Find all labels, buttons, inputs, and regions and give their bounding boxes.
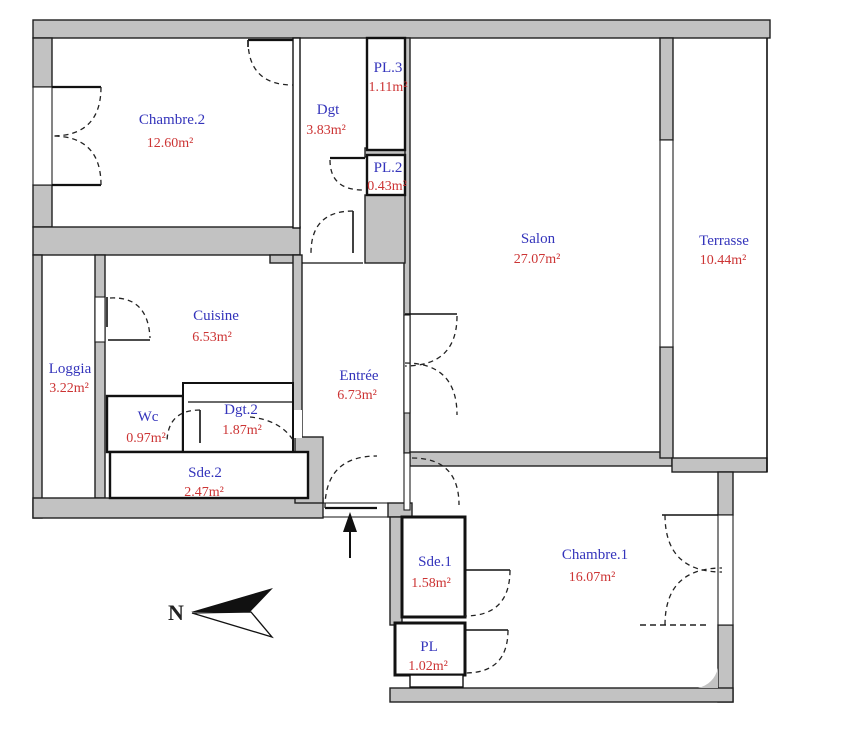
room-name-wc: Wc	[138, 409, 159, 425]
room-name-dgt: Dgt	[317, 102, 340, 118]
pl-door-arc	[465, 630, 508, 673]
wall-corner-curve	[698, 668, 718, 688]
room-name-dgt2: Dgt.2	[224, 402, 258, 418]
pl-closet-step	[410, 675, 463, 687]
wall-segment	[33, 38, 52, 87]
vestibule-door-frame	[404, 453, 410, 510]
room-name-pl: PL	[420, 639, 438, 655]
pl2-door-arc	[330, 160, 363, 190]
salon-door-arc2	[405, 363, 457, 415]
chambre2-door-arc	[248, 40, 293, 85]
room-area-sde1: 1.58m²	[411, 576, 451, 591]
wall-segment	[718, 472, 733, 515]
wall-segment	[33, 227, 300, 255]
entrance-arrow	[343, 512, 357, 558]
wall-segment	[410, 452, 672, 466]
room-name-entree: Entrée	[339, 368, 378, 384]
chambre1-window-arc	[665, 515, 722, 572]
floor-plan-page: N Chambre.2 12.60m² Dgt 3.83m² PL.3 1.11…	[0, 0, 850, 742]
room-area-dgt2: 1.87m²	[222, 423, 262, 438]
chambre2-window	[33, 87, 52, 185]
room-name-sde2: Sde.2	[188, 465, 222, 481]
wall-segment	[672, 458, 767, 472]
chambre2-dgt-divider	[293, 38, 300, 228]
wall-segment	[33, 498, 323, 518]
room-name-loggia: Loggia	[49, 361, 92, 377]
north-label: N	[168, 600, 184, 625]
chambre1-window	[718, 515, 733, 625]
sde1-door-arc	[465, 570, 510, 616]
room-area-cuisine: 6.53m²	[192, 330, 232, 345]
room-name-terrasse: Terrasse	[699, 233, 749, 249]
room-name-chambre2: Chambre.2	[139, 112, 205, 128]
room-name-chambre1: Chambre.1	[562, 547, 628, 563]
wall-segment	[33, 255, 42, 518]
floor-plan: N Chambre.2 12.60m² Dgt 3.83m² PL.3 1.11…	[0, 0, 850, 742]
room-area-pl3: 1.11m²	[368, 80, 407, 95]
wall-segment	[33, 185, 52, 227]
salon-terrasse-window	[660, 140, 673, 347]
loggia-door-arc	[110, 298, 150, 338]
room-area-pl: 1.02m²	[408, 659, 448, 674]
entrance-door-arc	[325, 456, 377, 508]
room-area-pl2: 0.43m²	[367, 179, 407, 194]
room-name-cuisine: Cuisine	[193, 308, 239, 324]
salon-door-frame	[404, 315, 410, 413]
room-name-pl2: PL.2	[374, 160, 403, 176]
wall-segment	[293, 255, 302, 437]
compass: N	[168, 588, 273, 637]
room-area-entree: 6.73m²	[337, 388, 377, 403]
wall-segment	[95, 255, 105, 498]
room-area-salon: 27.07m²	[514, 252, 561, 267]
dgt2-entree-gap	[293, 410, 302, 438]
wall-segment	[365, 195, 405, 263]
chambre2-window-arc	[52, 87, 101, 136]
wall-segment	[660, 347, 673, 458]
room-name-salon: Salon	[521, 231, 556, 247]
entrance-arrow-head	[343, 512, 357, 532]
room-name-sde1: Sde.1	[418, 554, 452, 570]
wall-segment	[390, 517, 402, 625]
room-area-wc: 0.97m²	[126, 431, 166, 446]
wall-segment	[660, 38, 673, 140]
chambre2-window-arc	[52, 136, 101, 185]
dgt-door-arc	[311, 211, 353, 253]
north-arrow-outline	[192, 612, 272, 637]
room-area-loggia: 3.22m²	[49, 381, 89, 396]
loggia-door-gap	[95, 297, 105, 342]
room-area-sde2: 2.47m²	[184, 485, 224, 500]
salon-door-arc	[405, 316, 457, 366]
wall-segment	[390, 688, 733, 702]
room-area-chambre2: 12.60m²	[147, 136, 194, 151]
room-name-pl3: PL.3	[374, 60, 403, 76]
north-arrow-icon	[191, 588, 273, 612]
wall-segment	[33, 20, 770, 38]
room-area-dgt: 3.83m²	[306, 123, 346, 138]
room-area-chambre1: 16.07m²	[569, 570, 616, 585]
room-area-terrasse: 10.44m²	[700, 253, 747, 268]
chambre1-window-arc	[665, 568, 722, 625]
